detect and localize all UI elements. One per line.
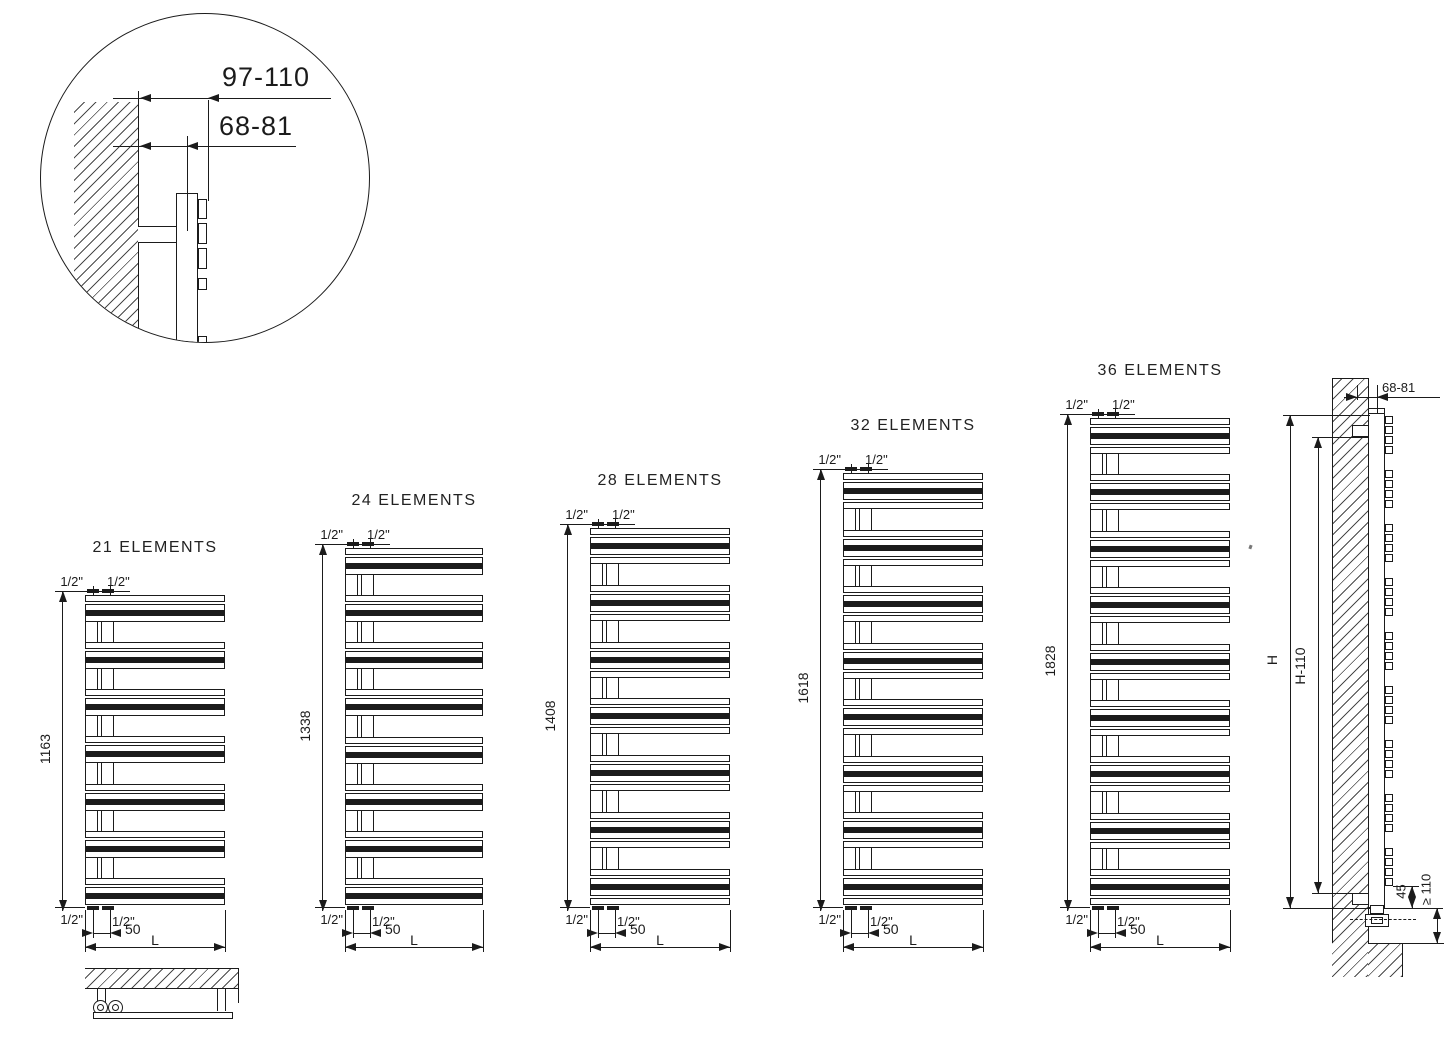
arrowhead-down [1314, 882, 1322, 893]
element-bar [590, 557, 730, 564]
element-group [85, 689, 225, 716]
wall-offset-dim-line [1344, 397, 1440, 398]
arrowhead-down [59, 900, 67, 911]
radiator-body [345, 548, 483, 905]
side-element [1385, 534, 1393, 542]
bottom-connection-left-label: 1/2" [803, 913, 841, 928]
element-bar [590, 764, 730, 771]
element-group [345, 831, 483, 858]
side-element [1385, 436, 1393, 444]
side-element [1385, 740, 1393, 748]
valve-nut [1370, 905, 1384, 914]
wall-hatch [85, 968, 238, 988]
element-bar [85, 898, 225, 905]
width-dim-label: L [893, 932, 933, 948]
arrowhead-left [208, 94, 219, 102]
element-bar [843, 539, 983, 546]
wall-mount-detail-circle: 97-11068-81 [40, 13, 370, 343]
radiator-body [85, 595, 225, 905]
element-bar [843, 756, 983, 763]
wall-edge-line [85, 968, 238, 969]
element-bar [345, 615, 483, 622]
element-group [345, 737, 483, 764]
element-bar [843, 643, 983, 650]
pitch-dim-line [1098, 933, 1115, 934]
top-connection-left-label: 1/2" [305, 528, 343, 543]
width-dim-label: L [394, 932, 434, 948]
element-group [85, 878, 225, 905]
element-bar [85, 784, 225, 791]
element-bar [1090, 427, 1230, 434]
wall-face-line [138, 91, 139, 343]
element-bar [85, 831, 225, 838]
side-element [1385, 524, 1393, 532]
element-bar [1090, 842, 1230, 849]
mounting-bracket [138, 226, 177, 243]
element-bar [1090, 776, 1230, 783]
element-bar [843, 889, 983, 896]
arrowhead-down [1286, 897, 1294, 908]
side-element [1385, 578, 1393, 586]
element-bar [345, 840, 483, 847]
element-bar [345, 698, 483, 705]
element-bar [590, 707, 730, 714]
width-dim-label: L [1140, 932, 1180, 948]
side-element-group [1385, 848, 1393, 886]
bottom-extension-line [315, 907, 345, 908]
element-bar [843, 776, 983, 783]
element-bar [345, 898, 483, 905]
arrowhead-down [1064, 900, 1072, 911]
element-bar [1090, 616, 1230, 623]
element-bar [590, 614, 730, 621]
side-element [1385, 598, 1393, 606]
bracket-line [225, 988, 226, 1011]
arrowhead-right [342, 929, 353, 937]
inner-offset-label: 68-81 [176, 111, 336, 142]
element-group [1090, 644, 1230, 680]
element-bar [85, 878, 225, 885]
element-bar [843, 878, 983, 885]
element-bar [1090, 560, 1230, 567]
element-group [1090, 756, 1230, 792]
side-element [1385, 804, 1393, 812]
element-bar [590, 878, 730, 885]
element-bar [843, 708, 983, 715]
side-element-group [1385, 578, 1393, 616]
element-bar [345, 689, 483, 696]
radiator-body [843, 473, 983, 905]
element-bar [1090, 785, 1230, 792]
side-element [1385, 632, 1393, 640]
side-element [1385, 858, 1393, 866]
element-bar [590, 821, 730, 828]
height-dim-line [62, 591, 63, 911]
element-bar [590, 812, 730, 819]
element-side-profile [198, 336, 207, 343]
element-bar [843, 482, 983, 489]
element-bar [1090, 531, 1230, 538]
element-bar [843, 812, 983, 819]
element-bar [590, 775, 730, 782]
element-bar [345, 878, 483, 885]
floor-hatch [1368, 943, 1402, 977]
element-bar [345, 737, 483, 744]
bottom-extension-line [813, 907, 843, 908]
pitch-dim-line [353, 933, 370, 934]
side-element [1385, 446, 1393, 454]
element-bar [85, 804, 225, 811]
element-bar [1090, 765, 1230, 772]
arrowhead-left [345, 943, 356, 951]
element-bar [85, 698, 225, 705]
top-connection-left-label: 1/2" [803, 453, 841, 468]
element-bar [843, 652, 983, 659]
element-bar [843, 719, 983, 726]
element-bar [843, 765, 983, 772]
element-bar [843, 821, 983, 828]
element-bar [85, 709, 225, 716]
arrowhead-left [110, 929, 121, 937]
element-group [345, 548, 483, 575]
side-element [1385, 662, 1393, 670]
element-side-profile [198, 278, 207, 290]
side-element [1385, 544, 1393, 552]
element-bar [590, 784, 730, 791]
element-bar [1090, 587, 1230, 594]
element-group [345, 878, 483, 905]
side-element [1385, 608, 1393, 616]
valve-centerline [1350, 919, 1416, 920]
wall-offset-label: 68-81 [1382, 381, 1415, 396]
arrowhead-right [82, 929, 93, 937]
element-bar [843, 663, 983, 670]
element-bar [843, 595, 983, 602]
floor-line [1368, 943, 1444, 944]
outer-offset-label: 97-110 [186, 62, 346, 93]
top-connection-stub [362, 542, 374, 546]
element-group [1090, 813, 1230, 849]
element-group [843, 869, 983, 905]
arrowhead-up [59, 591, 67, 602]
element-bar [85, 604, 225, 611]
element-group [843, 812, 983, 848]
element-bar [590, 528, 730, 535]
element-bar [345, 887, 483, 894]
bottom-connection-stub [362, 906, 374, 910]
element-bar [1090, 700, 1230, 707]
arrowhead-up [1064, 414, 1072, 425]
side-element [1385, 824, 1393, 832]
bottom-connection-stub [860, 906, 872, 910]
arrowhead-right [214, 943, 225, 951]
arrowhead-left [140, 94, 151, 102]
element-group [1090, 474, 1230, 510]
radiator-title: 36 ELEMENTS [1050, 362, 1270, 380]
side-element-group [1385, 632, 1393, 670]
element-group [345, 595, 483, 622]
side-element-group [1385, 794, 1393, 832]
element-bar [843, 832, 983, 839]
element-bar [85, 851, 225, 858]
element-bar [345, 548, 483, 555]
element-group [345, 642, 483, 669]
element-bar [590, 585, 730, 592]
element-bar [843, 550, 983, 557]
element-bar [843, 728, 983, 735]
extension-line [1283, 415, 1370, 416]
arrowhead-down [564, 900, 572, 911]
element-bar [1090, 729, 1230, 736]
radiator-body [590, 528, 730, 905]
element-group [85, 642, 225, 669]
top-connection-stub [1092, 412, 1104, 416]
element-bar [85, 756, 225, 763]
element-bar [345, 831, 483, 838]
element-bar [843, 785, 983, 792]
element-bar [1090, 869, 1230, 876]
top-connection-stub [592, 522, 604, 526]
element-group [1090, 531, 1230, 567]
floor-edge-line [1402, 943, 1403, 977]
side-element [1385, 490, 1393, 498]
element-bar [1090, 483, 1230, 490]
element-bar [345, 662, 483, 669]
arrowhead-up [1314, 437, 1322, 448]
element-group [590, 698, 730, 734]
bottom-connection-left-label: 1/2" [305, 913, 343, 928]
element-bar [1090, 673, 1230, 680]
element-bar [843, 869, 983, 876]
side-element-group [1385, 470, 1393, 508]
pipe-connection-inner-circle [97, 1004, 104, 1011]
element-bar [85, 642, 225, 649]
element-bar [85, 615, 225, 622]
element-group [85, 595, 225, 622]
side-element-group [1385, 740, 1393, 778]
element-group [345, 784, 483, 811]
element-group [843, 473, 983, 509]
arrowhead-left [140, 142, 151, 150]
element-bar [590, 755, 730, 762]
arrowhead-right [719, 943, 730, 951]
element-group [843, 699, 983, 735]
element-bar [590, 869, 730, 876]
extension-line [983, 910, 984, 952]
element-group [843, 756, 983, 792]
element-bar [345, 604, 483, 611]
top-connection-stub [607, 522, 619, 526]
element-bar [345, 851, 483, 858]
element-bar [843, 586, 983, 593]
element-group [590, 528, 730, 564]
element-group [843, 643, 983, 679]
bottom-offset-label: 45 [1395, 873, 1410, 909]
element-bar [590, 718, 730, 725]
height-dim-label: 1408 [542, 686, 558, 746]
element-bar [1090, 664, 1230, 671]
side-element [1385, 868, 1393, 876]
extension-line [1312, 893, 1360, 894]
element-group [85, 736, 225, 763]
element-bar [1090, 833, 1230, 840]
pitch-dim-line [598, 933, 615, 934]
height-dim-label: 1828 [1042, 631, 1058, 691]
element-bar [1090, 756, 1230, 763]
radiator-body [1090, 418, 1230, 905]
radiator-title: 24 ELEMENTS [304, 492, 524, 510]
extension-line [483, 910, 484, 952]
bottom-connection-stub [1107, 906, 1119, 910]
bottom-extension-line [560, 907, 590, 908]
side-element [1385, 480, 1393, 488]
arrowhead-up [817, 469, 825, 480]
element-bar [85, 689, 225, 696]
technical-drawing-canvas: 97-11068-81 21 ELEMENTS1/2"1/2"11631/2"1… [0, 0, 1449, 1037]
bottom-connection-left-label: 1/2" [1050, 913, 1088, 928]
element-bar [85, 662, 225, 669]
top-connection-stub [347, 542, 359, 546]
pitch-dim-line [93, 933, 110, 934]
mounting-bracket [1352, 893, 1369, 905]
element-bar [590, 898, 730, 905]
side-element [1385, 760, 1393, 768]
element-bar [1090, 503, 1230, 510]
element-bar [1090, 540, 1230, 547]
arrowhead-up [1286, 415, 1294, 426]
arrowhead-down [817, 900, 825, 911]
wall-face-line [85, 988, 238, 989]
arrowhead-left [615, 929, 626, 937]
element-bar [843, 898, 983, 905]
side-element [1385, 750, 1393, 758]
element-group [843, 530, 983, 566]
element-bar [1090, 644, 1230, 651]
radiator-panel-top-view [93, 1012, 233, 1019]
arrowhead-right [1087, 929, 1098, 937]
side-element [1385, 770, 1393, 778]
element-bar [345, 784, 483, 791]
element-group [590, 755, 730, 791]
element-group [590, 585, 730, 621]
arrowhead-left [590, 943, 601, 951]
element-bar [1090, 822, 1230, 829]
element-bar [590, 671, 730, 678]
arrowhead-up [319, 544, 327, 555]
bottom-connection-left-label: 1/2" [45, 913, 83, 928]
side-element [1385, 652, 1393, 660]
height-dim-label: 1338 [297, 696, 313, 756]
side-element [1385, 814, 1393, 822]
element-bar [843, 672, 983, 679]
top-connection-stub [845, 467, 857, 471]
element-bar [1090, 709, 1230, 716]
element-bar [1090, 551, 1230, 558]
radiator-title: 21 ELEMENTS [45, 539, 265, 557]
arrowhead-right [472, 943, 483, 951]
element-side-profile [198, 223, 207, 244]
arrowhead-left [85, 943, 96, 951]
element-bar [1090, 447, 1230, 454]
arrowhead-right [840, 929, 851, 937]
arrowhead-right [972, 943, 983, 951]
extension-line [225, 910, 226, 952]
element-group [1090, 700, 1230, 736]
element-bar [843, 473, 983, 480]
element-bar [590, 651, 730, 658]
side-element [1385, 686, 1393, 694]
side-element [1385, 706, 1393, 714]
element-bar [590, 727, 730, 734]
element-bar [590, 841, 730, 848]
element-bar [843, 530, 983, 537]
element-bar [345, 568, 483, 575]
element-side-profile [198, 199, 207, 219]
element-group [590, 642, 730, 678]
arrowhead-right [587, 929, 598, 937]
collector-tube [1368, 408, 1385, 908]
top-connection-stub [102, 589, 114, 593]
bottom-extension-line [1060, 907, 1090, 908]
wall-hatch [1332, 378, 1368, 977]
wall-hatch [74, 102, 138, 343]
pitch-dim-line [851, 933, 868, 934]
width-dim-label: L [135, 932, 175, 948]
floor-clearance-label: ≥ 110 [1420, 861, 1435, 917]
element-bar [843, 493, 983, 500]
mounting-bracket [1352, 425, 1369, 437]
side-element [1385, 848, 1393, 856]
tube-centerline [187, 136, 188, 231]
element-bar [85, 595, 225, 602]
element-bar [590, 642, 730, 649]
element-group [1090, 869, 1230, 905]
side-element [1385, 716, 1393, 724]
width-dim-label: L [640, 932, 680, 948]
element-bar [590, 548, 730, 555]
wall-back-line [1332, 378, 1333, 943]
element-bar [345, 557, 483, 564]
side-element [1385, 426, 1393, 434]
element-bar [590, 594, 730, 601]
bracket-height-dim-line [1318, 437, 1319, 893]
arrowhead-left [1090, 943, 1101, 951]
element-side-profile [198, 248, 207, 269]
element-bar [1090, 889, 1230, 896]
side-element [1385, 642, 1393, 650]
height-dim-label: 1163 [37, 719, 53, 779]
element-group [85, 784, 225, 811]
element-bar [85, 736, 225, 743]
element-bar [345, 793, 483, 800]
element-bar [85, 793, 225, 800]
arrowhead-left [868, 929, 879, 937]
side-element [1385, 588, 1393, 596]
element-bar [345, 804, 483, 811]
element-group [590, 812, 730, 848]
side-element [1385, 878, 1393, 886]
arrowhead-right [1219, 943, 1230, 951]
bracket-height-label: H-110 [1292, 636, 1308, 696]
height-dim-line [567, 524, 568, 911]
element-group [85, 831, 225, 858]
extension-line [1230, 910, 1231, 952]
element-bar [1090, 418, 1230, 425]
height-dim-line [322, 544, 323, 911]
element-bar [345, 709, 483, 716]
element-bar [1090, 878, 1230, 885]
side-element [1385, 794, 1393, 802]
